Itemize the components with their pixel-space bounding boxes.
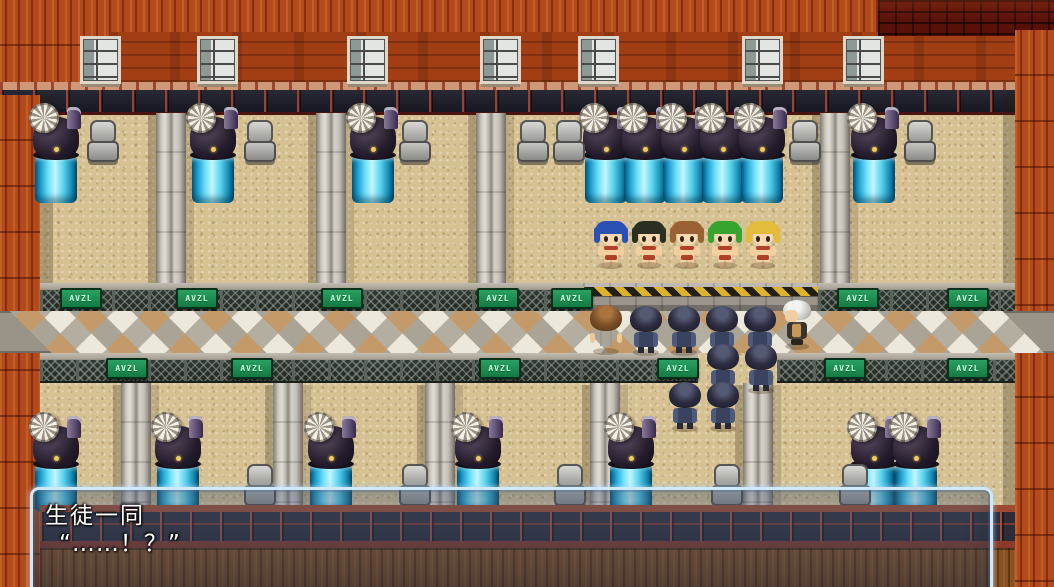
girl-npc bbox=[632, 221, 666, 267]
sign-label: AVZL bbox=[115, 365, 138, 373]
tank-machine bbox=[190, 111, 236, 206]
green-sign: AVZL bbox=[947, 358, 989, 379]
tank-machine bbox=[851, 111, 897, 206]
sign-label: AVZL bbox=[560, 295, 583, 303]
sign-label: AVZL bbox=[846, 295, 869, 303]
dialogue-window[interactable]: 生徒一同 “……！？” bbox=[30, 487, 993, 587]
sign-label: AVZL bbox=[486, 295, 509, 303]
green-sign: AVZL bbox=[321, 288, 363, 309]
tile-walkway bbox=[0, 311, 1054, 353]
right-wall bbox=[1015, 30, 1054, 587]
sign-label: AVZL bbox=[330, 295, 353, 303]
tank-machine bbox=[350, 111, 396, 206]
sign-label: AVZL bbox=[956, 365, 979, 373]
green-sign: AVZL bbox=[947, 288, 989, 309]
tank-machine bbox=[739, 111, 785, 206]
pillar bbox=[156, 113, 186, 285]
green-sign: AVZL bbox=[231, 358, 273, 379]
girl-npc bbox=[594, 221, 628, 267]
girl-npc bbox=[670, 221, 704, 267]
tank-machine bbox=[33, 111, 79, 206]
green-sign: AVZL bbox=[837, 288, 879, 309]
dialogue-text: “……！？” bbox=[59, 524, 181, 558]
window bbox=[347, 36, 388, 84]
green-sign: AVZL bbox=[477, 288, 519, 309]
green-sign: AVZL bbox=[824, 358, 866, 379]
girl-npc bbox=[746, 221, 780, 267]
green-sign: AVZL bbox=[479, 358, 521, 379]
green-sign: AVZL bbox=[60, 288, 102, 309]
window bbox=[742, 36, 783, 84]
chair bbox=[86, 120, 116, 166]
chair bbox=[788, 120, 818, 166]
top-brick-wall bbox=[0, 0, 878, 32]
chair bbox=[903, 120, 933, 166]
green-sign: AVZL bbox=[106, 358, 148, 379]
sign-label: AVZL bbox=[666, 365, 689, 373]
pillar bbox=[316, 113, 346, 285]
window bbox=[843, 36, 884, 84]
green-sign: AVZL bbox=[176, 288, 218, 309]
window bbox=[197, 36, 238, 84]
green-sign: AVZL bbox=[657, 358, 699, 379]
chair bbox=[516, 120, 546, 166]
student-npc bbox=[666, 306, 702, 354]
student-npc bbox=[743, 344, 779, 392]
chair bbox=[552, 120, 582, 166]
old-man-npc bbox=[780, 300, 814, 348]
sign-label: AVZL bbox=[956, 295, 979, 303]
student-npc bbox=[628, 306, 664, 354]
pillar bbox=[820, 113, 850, 285]
pillar bbox=[476, 113, 506, 285]
sign-label: AVZL bbox=[69, 295, 92, 303]
sign-label: AVZL bbox=[833, 365, 856, 373]
sign-label: AVZL bbox=[488, 365, 511, 373]
sign-label: AVZL bbox=[240, 365, 263, 373]
brown-hair-student bbox=[588, 305, 624, 353]
sign-label: AVZL bbox=[185, 295, 208, 303]
game-screen: AVZLAVZLAVZLAVZLAVZLAVZLAVZLAVZLAVZLAVZL… bbox=[0, 0, 1054, 587]
window bbox=[80, 36, 121, 84]
chair bbox=[398, 120, 428, 166]
girl-npc bbox=[708, 221, 742, 267]
window bbox=[480, 36, 521, 84]
green-sign: AVZL bbox=[551, 288, 593, 309]
student-npc bbox=[667, 382, 703, 430]
window bbox=[578, 36, 619, 84]
student-npc bbox=[705, 382, 741, 430]
chair bbox=[243, 120, 273, 166]
